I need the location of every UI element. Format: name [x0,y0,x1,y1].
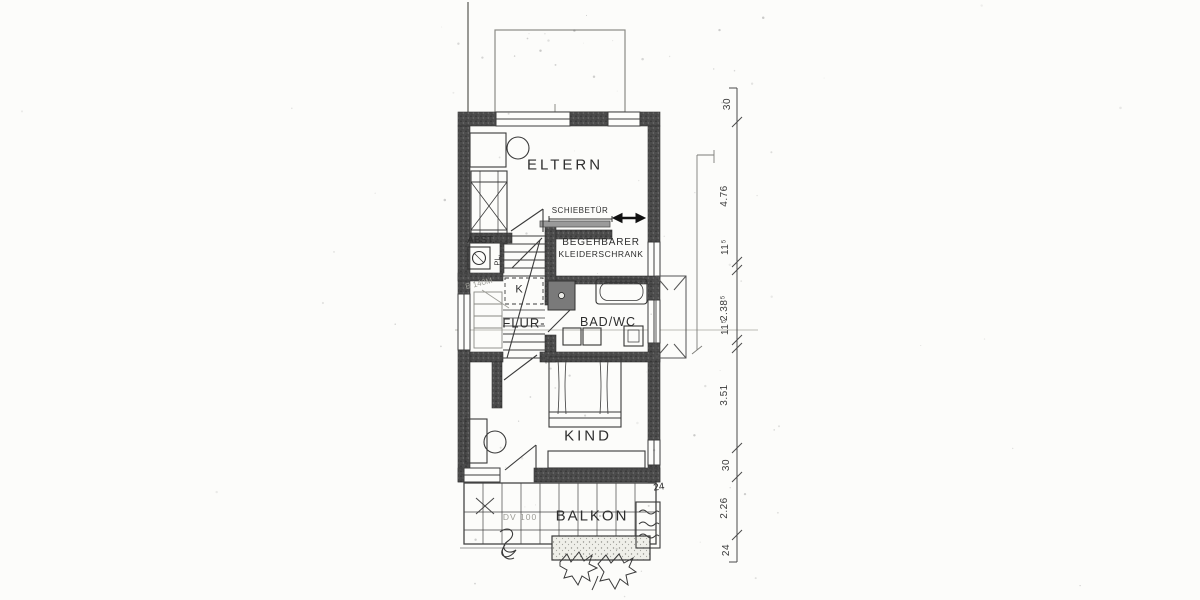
washing-machine-icon [468,247,490,269]
room-label-eltern: ELTERN [527,158,603,173]
dim-wall-bottom: 30 [722,459,732,471]
dimension-chain [692,88,742,562]
dim-wall-mid1: 11⁵ [721,239,731,255]
room-label-pl: PL. [493,254,501,265]
dim-planter-depth: 24 [722,544,732,556]
staircase [503,236,545,358]
sliding-door [540,216,612,227]
dim-eltern-depth: 4.76 [720,185,730,206]
sliding-door-label: SCHIEBETÜR [552,207,609,215]
closet-label-line2: KLEIDERSCHRANK [559,250,644,259]
room-label-kind: KIND [564,429,612,444]
floorplan-canvas: ELTERN KIND BALKON BAD/WC FLUR- ABST. PL… [0,0,1200,600]
dim-wall-top: 30 [723,98,733,110]
closet-label-line1: BEGEHBARER [562,238,639,248]
eltern-furniture [470,133,529,243]
dim-wall-mid2: 11⁵ [721,319,731,335]
room-label-balkon: BALKON [556,509,629,524]
room-label-flur: FLUR- [502,317,545,330]
annotation-dv100: DV 100 [503,513,537,522]
room-label-bad-wc: BAD/WC [580,316,636,329]
site-outline [468,2,625,112]
slide-direction-arrow-icon [613,214,645,223]
annotation-balcony-wall-24: 24 [653,482,665,493]
dim-bad-depth: 2.38⁵ [720,295,730,321]
room-label-abst: ABST. [467,236,495,246]
room-label-k: K [515,285,522,296]
bath-fixtures [548,279,647,346]
dim-balkon-depth: 2.26 [720,497,730,518]
dim-kind-depth: 3.51 [720,384,730,405]
